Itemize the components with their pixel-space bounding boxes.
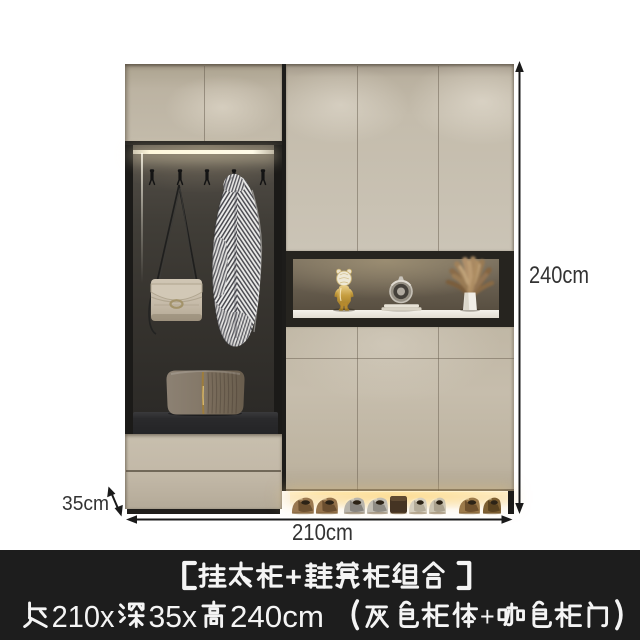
svg-text:35cm: 35cm [62, 493, 109, 515]
svg-text:240cm: 240cm [230, 599, 324, 634]
svg-text:240cm: 240cm [529, 262, 589, 289]
svg-text:+: + [285, 561, 302, 592]
svg-text:210x: 210x [52, 599, 115, 634]
svg-text:+: + [480, 601, 495, 632]
svg-text:210cm: 210cm [292, 519, 353, 545]
svg-text:35x: 35x [149, 599, 198, 634]
